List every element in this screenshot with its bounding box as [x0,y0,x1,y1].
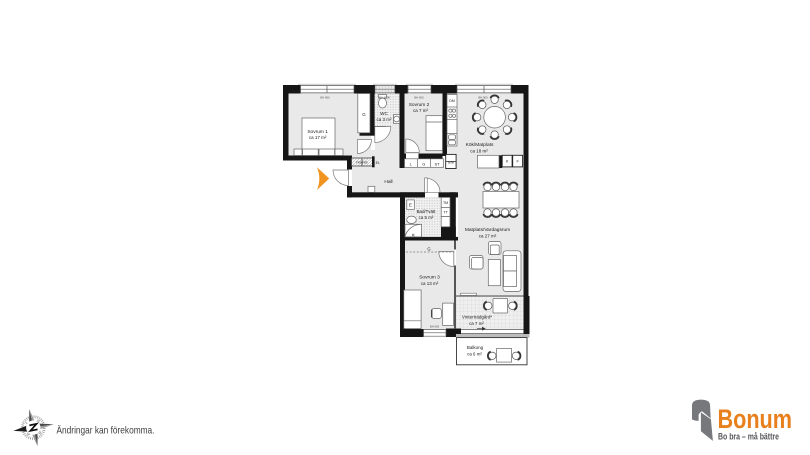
svg-text:BH 1800: BH 1800 [379,95,390,99]
svg-text:Balkong: Balkong [467,345,484,350]
svg-text:Bonum: Bonum [718,404,793,434]
svg-text:Sovrum 2: Sovrum 2 [409,102,430,108]
svg-text:BH 900: BH 900 [478,95,488,99]
svg-text:Vinterträdgård*: Vinterträdgård* [462,313,492,319]
svg-text:ca 3 m²: ca 3 m² [376,117,392,122]
svg-text:U/M: U/M [448,160,454,164]
svg-text:ca 7 m²: ca 7 m² [413,108,429,113]
svg-text:TM: TM [443,201,448,205]
svg-text:ca 27 m²: ca 27 m² [479,233,497,238]
svg-text:Bad/Tvätt: Bad/Tvätt [417,209,437,214]
svg-text:Sovrum 1: Sovrum 1 [307,129,328,135]
svg-text:WC: WC [380,111,388,116]
svg-text:G: G [422,161,425,166]
svg-text:FRD FRD: FRD FRD [356,161,368,165]
svg-text:K: K [506,160,509,164]
svg-text:Sovrum 3: Sovrum 3 [419,274,440,280]
svg-text:BH 600: BH 600 [430,325,440,329]
svg-text:EL: EL [376,161,380,165]
svg-text:E: E [409,203,412,208]
svg-text:Bo bra – må bättre: Bo bra – må bättre [718,431,779,441]
svg-text:G: G [427,246,430,251]
svg-text:ST: ST [434,161,440,166]
svg-text:Ändringar kan förekomma.: Ändringar kan förekomma. [57,425,155,437]
svg-text:BH 900: BH 900 [320,95,330,99]
svg-text:ca 18 m²: ca 18 m² [470,148,488,153]
svg-text:G: G [362,112,366,117]
svg-text:BH 600: BH 600 [414,95,424,99]
svg-text:Hall: Hall [384,179,392,185]
svg-text:ca 5 m²: ca 5 m² [419,215,434,220]
svg-text:ca 6 m²: ca 6 m² [467,351,482,356]
svg-text:Kök/Matplats: Kök/Matplats [466,142,494,148]
svg-text:ca 7 m²: ca 7 m² [469,321,484,326]
svg-text:DM: DM [449,99,455,103]
svg-text:ca 17 m²: ca 17 m² [309,135,327,140]
svg-text:ca 13 m²: ca 13 m² [421,281,439,286]
svg-text:Matplats/Vardagsrum: Matplats/Vardagsrum [465,227,510,233]
